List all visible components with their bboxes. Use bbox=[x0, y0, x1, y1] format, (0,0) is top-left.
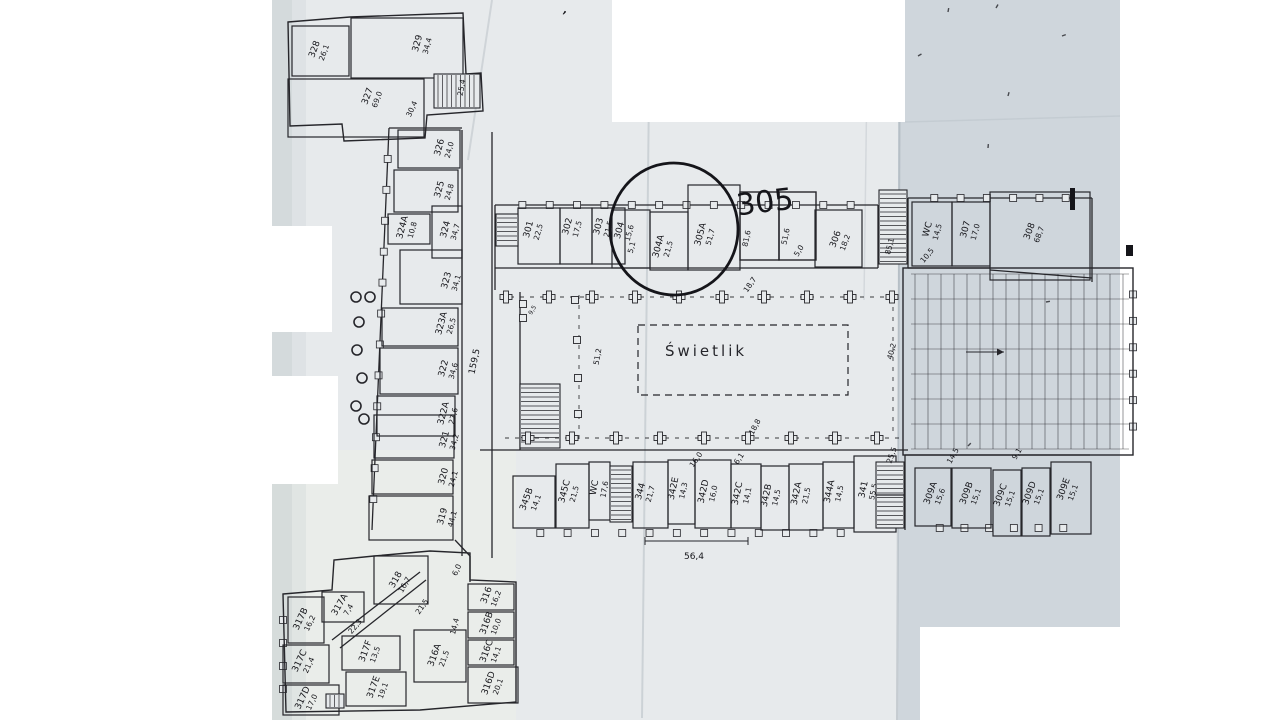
window-tick bbox=[1035, 525, 1042, 532]
skylight-label: Świetlik bbox=[665, 341, 747, 360]
staircase bbox=[610, 466, 632, 522]
dimension: 56,4 bbox=[684, 552, 704, 562]
window-tick bbox=[628, 202, 635, 209]
window-tick bbox=[847, 202, 854, 209]
ink-blob bbox=[1126, 245, 1133, 256]
window-tick bbox=[378, 310, 385, 317]
ink-blob bbox=[1070, 188, 1075, 210]
floorplan-svg: 32826,132934,432769,032624,032524,8324A1… bbox=[0, 0, 1280, 720]
window-tick bbox=[710, 202, 717, 209]
pilaster-symbol bbox=[572, 297, 579, 304]
staircase bbox=[496, 214, 518, 246]
ink-speck bbox=[1046, 301, 1050, 302]
window-tick bbox=[673, 530, 680, 537]
privacy-mask bbox=[920, 627, 1140, 720]
window-tick bbox=[379, 279, 386, 286]
window-tick bbox=[957, 195, 964, 202]
window-tick bbox=[537, 530, 544, 537]
window-tick bbox=[1036, 195, 1043, 202]
pilaster-symbol bbox=[575, 411, 582, 418]
window-tick bbox=[591, 530, 598, 537]
window-tick bbox=[1010, 525, 1017, 532]
floorplan-photo: 32826,132934,432769,032624,032524,8324A1… bbox=[0, 0, 1280, 720]
window-tick bbox=[683, 202, 690, 209]
window-tick bbox=[931, 195, 938, 202]
window-tick bbox=[375, 372, 382, 379]
window-tick bbox=[983, 195, 990, 202]
privacy-mask bbox=[262, 226, 332, 332]
window-tick bbox=[1062, 195, 1069, 202]
window-tick bbox=[646, 530, 653, 537]
ink-speck bbox=[948, 8, 949, 12]
pilaster-symbol bbox=[574, 337, 581, 344]
window-tick bbox=[1060, 525, 1067, 532]
window-tick bbox=[701, 530, 708, 537]
pilaster-symbol bbox=[520, 301, 527, 308]
window-tick bbox=[837, 530, 844, 537]
window-tick bbox=[383, 186, 390, 193]
window-tick bbox=[728, 530, 735, 537]
staircase bbox=[876, 462, 904, 528]
window-tick bbox=[1010, 195, 1017, 202]
privacy-mask bbox=[612, 0, 905, 122]
privacy-mask bbox=[256, 376, 338, 484]
window-tick bbox=[384, 155, 391, 162]
window-tick bbox=[380, 248, 387, 255]
staircase bbox=[326, 694, 344, 708]
window-tick bbox=[820, 202, 827, 209]
window-tick bbox=[656, 202, 663, 209]
window-tick bbox=[564, 530, 571, 537]
annotation-305: 305 bbox=[734, 182, 795, 224]
pilaster-symbol bbox=[575, 375, 582, 382]
pilaster-symbol bbox=[520, 315, 527, 322]
window-tick bbox=[370, 496, 377, 503]
window-tick bbox=[619, 530, 626, 537]
